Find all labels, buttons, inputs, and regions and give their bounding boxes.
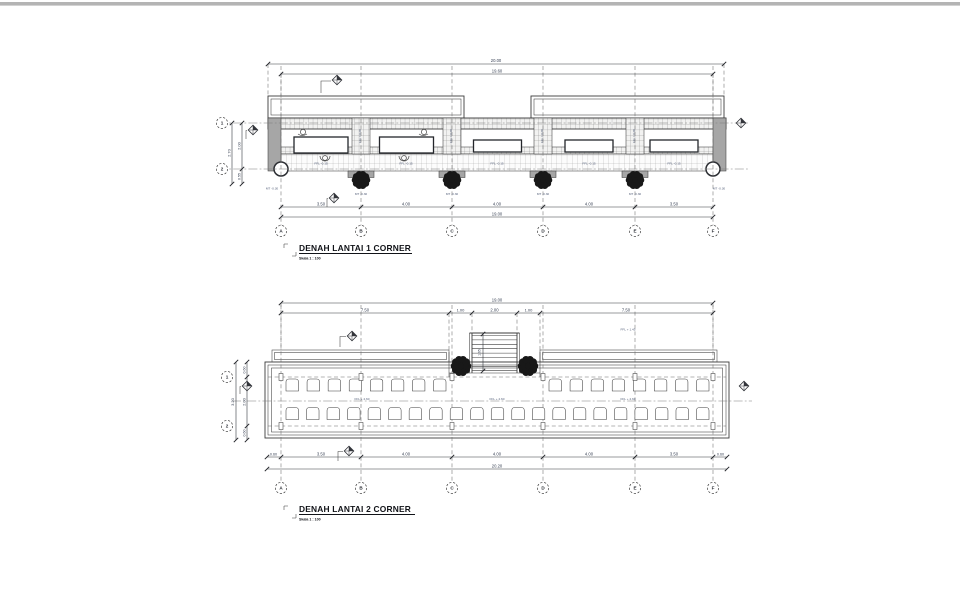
annotation-text: 0.60	[270, 453, 277, 457]
annotation-text: FFL + 2.60	[355, 397, 370, 401]
annotation-text: MT -0.30	[713, 187, 726, 191]
plan2-title: DENAH LANTAI 2 CORNER	[299, 504, 411, 514]
detail-bracket-icon	[284, 244, 296, 256]
plan1-scale: Skala 1 : 100	[299, 257, 321, 261]
seat	[349, 379, 362, 391]
annotation-text: 4.00	[585, 202, 594, 207]
seat	[450, 408, 463, 420]
annotation-text: MT -0.30	[266, 187, 279, 191]
seat	[434, 379, 447, 391]
annotation-text: 0.60	[243, 367, 247, 374]
annotation-text: 1.65	[478, 349, 482, 356]
annotation-text: MT -0.30	[355, 192, 368, 196]
seat	[370, 379, 383, 391]
annotation-text: 4.00	[402, 202, 411, 207]
grid-bubble-label: F	[712, 486, 715, 491]
seat	[409, 408, 422, 420]
desk	[380, 137, 434, 153]
sheet-top-rule	[0, 2, 960, 6]
seat	[532, 408, 545, 420]
seat	[412, 379, 425, 391]
annotation-text: 0.60	[243, 430, 247, 437]
grid-bubble-label: F	[712, 229, 715, 234]
seat	[286, 379, 299, 391]
seat	[570, 379, 583, 391]
window	[650, 140, 698, 152]
annotation-text: 7.50	[361, 308, 370, 313]
annotation-text: 4.00	[585, 452, 594, 457]
seat	[675, 379, 688, 391]
tree-icon	[451, 356, 472, 376]
seat	[389, 408, 402, 420]
annotation-text: 4.00	[493, 202, 502, 207]
annotation-text: FFL -0.15	[399, 162, 413, 166]
canopy-left	[268, 96, 464, 118]
seat	[591, 379, 604, 391]
seat	[491, 408, 504, 420]
annotation-text: FFL + 1.45	[621, 328, 636, 332]
seat	[655, 408, 668, 420]
plan2-titleblock: DENAH LANTAI 2 CORNER Skala 1 : 100	[284, 504, 415, 522]
seat	[307, 408, 320, 420]
seat	[549, 379, 562, 391]
annotation-text: FFL ± 0.00	[632, 129, 636, 143]
canopy-right	[531, 96, 724, 118]
seat	[368, 408, 381, 420]
section-marker-icon	[347, 331, 357, 341]
seat	[612, 379, 625, 391]
grid-bubble-label: 1	[221, 121, 224, 126]
plan2-scale: Skala 1 : 100	[299, 518, 321, 522]
annotation-text: 2.00	[237, 141, 242, 150]
seat	[391, 379, 404, 391]
annotation-text: 19.00	[492, 298, 503, 303]
tree-icon	[352, 171, 371, 189]
seat	[512, 408, 525, 420]
annotation-text: 2.70	[227, 148, 232, 157]
seat	[328, 379, 341, 391]
tree-icon	[626, 171, 645, 189]
annotation-text: 2.00	[242, 397, 247, 406]
roof-edge-right	[540, 350, 717, 362]
grid-bubble-label: 2	[226, 424, 229, 429]
annotation-text: 2.00	[490, 308, 499, 313]
seat	[348, 408, 361, 420]
section-marker-icon	[242, 381, 252, 391]
section-marker-icon	[736, 118, 746, 128]
seat	[594, 408, 607, 420]
annotation-text: 3.50	[670, 452, 679, 457]
annotation-text: 19.60	[492, 69, 503, 74]
annotation-text: FFL -0.15	[314, 162, 328, 166]
grid-bubble-label: 2	[221, 167, 224, 172]
seat	[676, 408, 689, 420]
seat	[614, 408, 627, 420]
section-marker-icon	[329, 193, 339, 203]
annotation-text: 20.00	[491, 58, 502, 63]
annotation-text: 1.00	[457, 308, 466, 313]
grid-bubble-label: E	[633, 486, 636, 491]
tree-icon	[443, 171, 462, 189]
seat	[633, 379, 646, 391]
seat	[430, 408, 443, 420]
plan1-titleblock: DENAH LANTAI 1 CORNER Skala 1 : 100	[284, 243, 412, 261]
section-marker-icon	[739, 381, 749, 391]
annotation-text: FFL ± 0.00	[449, 129, 453, 143]
annotation-text: 3.50	[317, 202, 326, 207]
seat	[635, 408, 648, 420]
window	[474, 140, 522, 152]
annotation-text: FFL ± 0.00	[540, 129, 544, 143]
annotation-text: 7.50	[622, 308, 631, 313]
tree-icon	[518, 356, 539, 376]
seat	[471, 408, 484, 420]
annotation-text: 3.50	[670, 202, 679, 207]
desk	[294, 137, 348, 153]
tree-icon	[534, 171, 553, 189]
annotation-text: FFL -0.15	[582, 162, 596, 166]
annotation-text: 3.20	[230, 397, 235, 406]
annotation-text: MT -0.30	[537, 192, 550, 196]
seat	[654, 379, 667, 391]
annotation-text: 1.00	[525, 308, 534, 313]
cad-drawing-sheet: 20.0019.603.504.004.004.003.5019.00MT -0…	[0, 0, 960, 590]
seat	[553, 408, 566, 420]
seat	[573, 408, 586, 420]
annotation-text: 4.00	[402, 452, 411, 457]
annotation-text: FFL -0.15	[667, 162, 681, 166]
grid-bubble-label: 1	[226, 375, 229, 380]
annotation-text: MT -0.30	[446, 192, 459, 196]
window	[565, 140, 613, 152]
annotation-text: 3.50	[317, 452, 326, 457]
annotation-text: 19.00	[492, 212, 503, 217]
drawing-canvas: 20.0019.603.504.004.004.003.5019.00MT -0…	[0, 0, 960, 590]
annotation-text: 20.20	[492, 464, 503, 469]
plan1-title: DENAH LANTAI 1 CORNER	[299, 243, 411, 253]
front-wall	[268, 118, 726, 129]
section-marker-icon	[248, 125, 258, 135]
seat	[327, 408, 340, 420]
annotation-text: MT -0.30	[629, 192, 642, 196]
annotation-text: FFL -0.15	[490, 162, 504, 166]
roof-edge-left	[272, 350, 449, 362]
seat	[286, 408, 299, 420]
annotation-text: FFL + 2.60	[621, 397, 636, 401]
annotation-text: FFL ± 0.00	[358, 129, 362, 143]
section-marker-icon	[344, 446, 354, 456]
annotation-text: 0.60	[717, 453, 724, 457]
annotation-text: 4.00	[493, 452, 502, 457]
seat	[307, 379, 320, 391]
seat	[697, 379, 710, 391]
seat	[697, 408, 710, 420]
section-marker-icon	[332, 75, 342, 85]
annotation-text: FFL + 2.60	[490, 397, 505, 401]
annotation-text: 0.55	[238, 173, 242, 180]
grid-bubble-label: E	[633, 229, 636, 234]
detail-bracket-icon	[284, 506, 296, 518]
